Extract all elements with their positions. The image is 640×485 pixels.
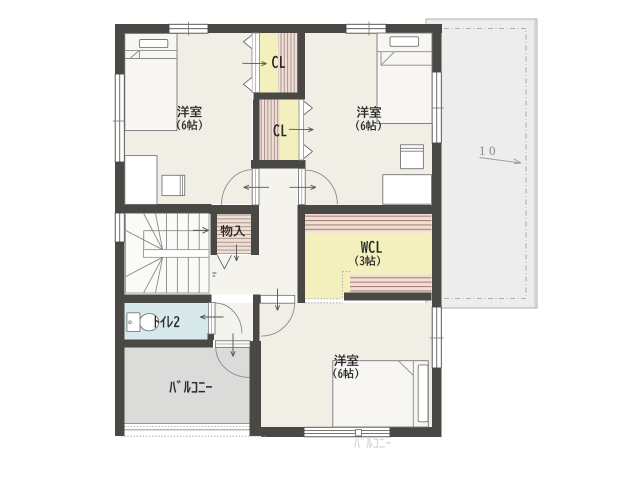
svg-text:10: 10 <box>479 143 499 158</box>
